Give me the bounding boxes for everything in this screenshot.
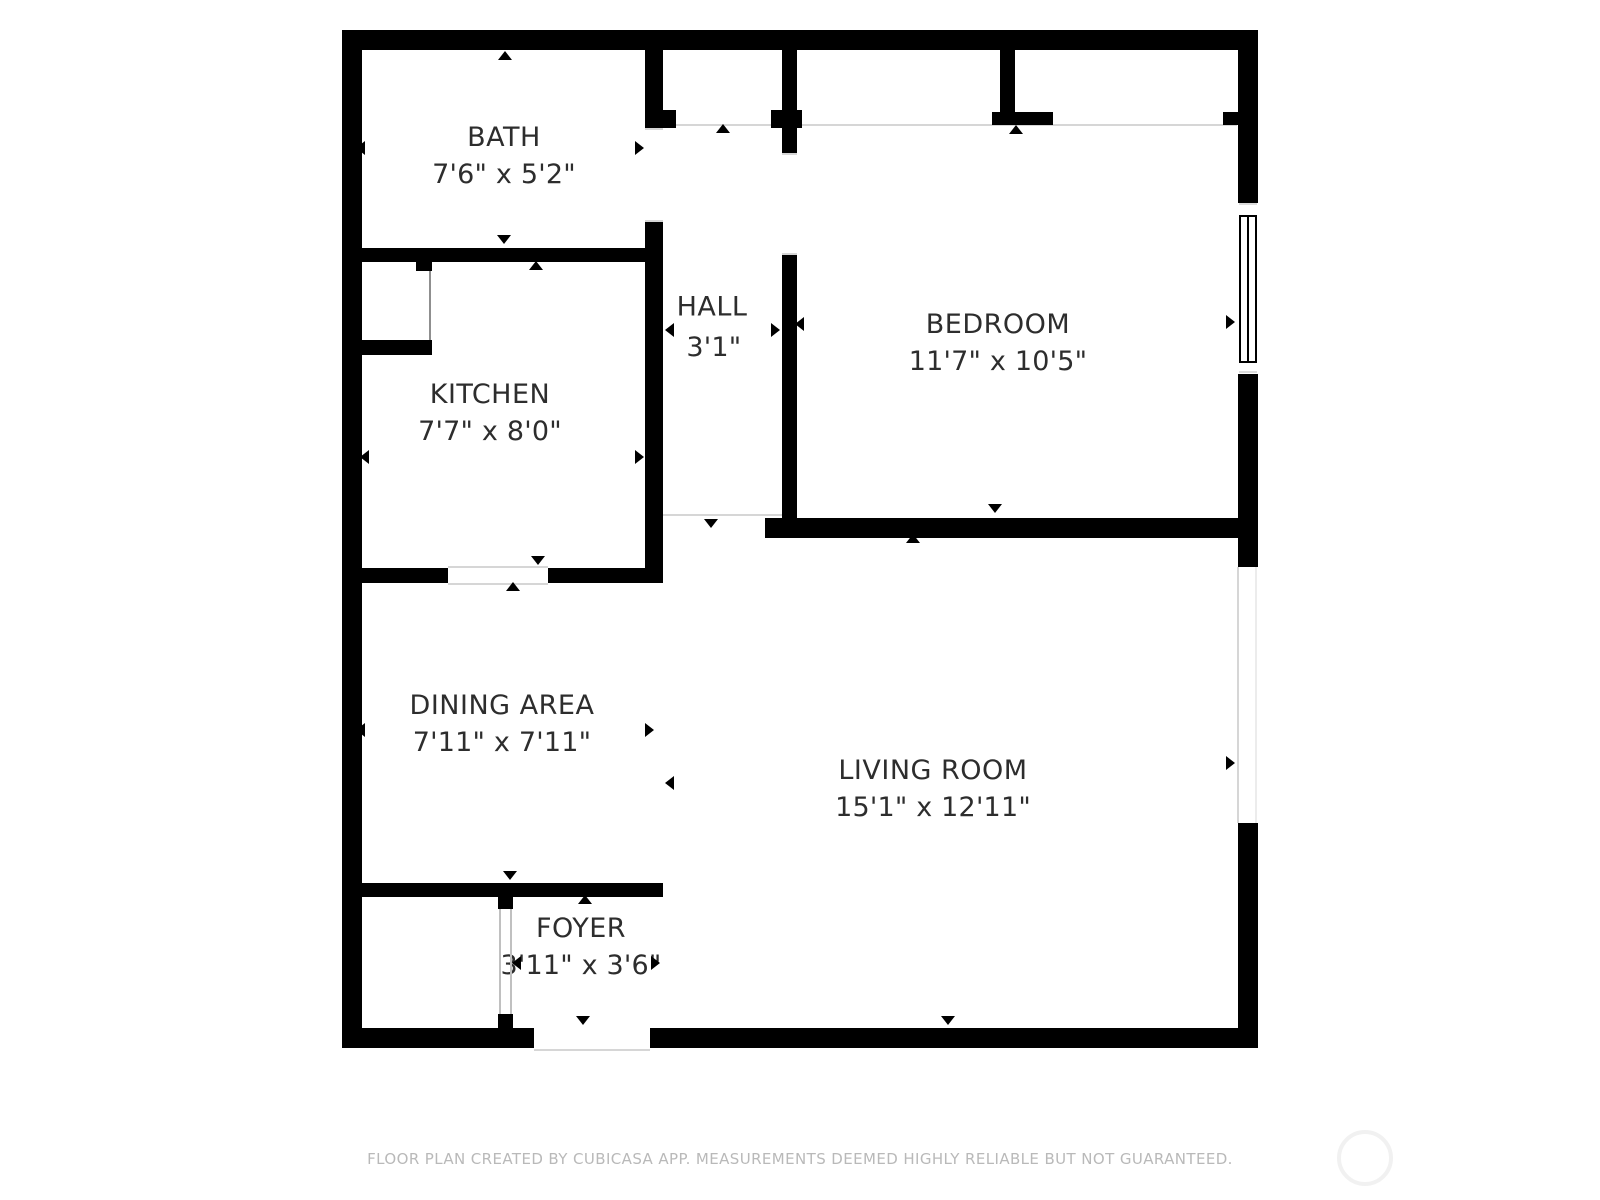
dimension-arrow-up-icon [578,895,592,904]
wall-segment [416,262,432,271]
room-name: LIVING ROOM [835,752,1031,789]
wall-segment [645,222,663,583]
wall-segment [1238,30,1258,203]
watermark-circle-icon [1337,1130,1393,1186]
wall-segment [1238,823,1258,1048]
thin-line [1239,203,1257,205]
room-dimensions: 3'11" x 3'6" [500,947,661,984]
dimension-arrow-down-icon [503,871,517,880]
room-label-kitchen: KITCHEN 7'7" x 8'0" [418,376,562,450]
wall-segment [782,50,797,153]
dimension-arrow-right-icon [635,141,644,155]
room-name: KITCHEN [418,376,562,413]
floor-plan: BATH 7'6" x 5'2" KITCHEN 7'7" x 8'0" HAL… [0,0,1600,1200]
thin-line [663,514,782,516]
dimension-arrow-left-icon [356,141,365,155]
dimension-arrow-right-icon [1226,756,1235,770]
thin-line [534,1049,650,1051]
room-name: FOYER [500,910,661,947]
dimension-arrow-left-icon [665,323,674,337]
dimension-arrow-down-icon [531,556,545,565]
wall-segment [1223,112,1238,125]
thin-line [645,128,663,130]
thin-line [782,153,797,155]
thin-line [1255,567,1257,823]
wall-segment [645,50,663,128]
dimension-arrow-left-icon [360,450,369,464]
dimension-arrow-down-icon [941,1016,955,1025]
dimension-arrow-right-icon [651,956,660,970]
wall-segment [992,112,1053,125]
dimension-arrow-up-icon [906,534,920,543]
wall-segment [498,895,513,909]
room-label-living-room: LIVING ROOM 15'1" x 12'11" [835,752,1031,826]
dimension-arrow-right-icon [771,323,780,337]
room-dimensions: 11'7" x 10'5" [909,343,1088,380]
room-label-bath: BATH 7'6" x 5'2" [432,119,576,193]
room-dimensions: 15'1" x 12'11" [835,789,1031,826]
wall-segment [342,340,432,355]
dimension-arrow-up-icon [498,51,512,60]
wall-segment [342,248,663,262]
wall-segment [771,110,802,128]
room-label-hall: HALL [677,289,748,326]
thin-line [448,566,548,568]
dimension-arrow-up-icon [506,582,520,591]
hall-dimensions-clipped: 3'1" x 10'9" [663,329,782,367]
thin-line [663,124,1237,126]
dimension-arrow-right-icon [645,723,654,737]
room-dimensions: 7'7" x 8'0" [418,413,562,450]
dimension-arrow-left-icon [795,317,804,331]
thin-line [448,583,548,585]
room-label-foyer: FOYER 3'11" x 3'6" [500,910,661,984]
dimension-arrow-right-icon [635,450,644,464]
room-name: BEDROOM [909,306,1088,343]
dimension-arrow-left-icon [512,956,521,970]
thin-line [499,908,501,1014]
room-dimensions: 3'1" x 10'9" [686,329,758,367]
dimension-arrow-left-icon [665,776,674,790]
room-name: BATH [432,119,576,156]
wall-segment [342,30,1258,50]
thin-line [1239,371,1257,373]
dimension-arrow-down-icon [497,235,511,244]
wall-segment [548,568,663,583]
dimension-arrow-down-icon [704,519,718,528]
dimension-arrow-down-icon [576,1016,590,1025]
wall-segment [342,568,448,583]
dimension-arrow-up-icon [716,124,730,133]
wall-segment [650,1028,1258,1048]
wall-segment [498,1014,513,1028]
thin-line [1237,567,1239,823]
room-name: HALL [677,289,748,326]
dimension-arrow-left-icon [356,723,365,737]
dimension-arrow-right-icon [1226,315,1235,329]
room-label-bedroom: BEDROOM 11'7" x 10'5" [909,306,1088,380]
wall-segment [663,110,676,128]
wall-segment [765,518,1238,538]
wall-segment [342,1028,534,1048]
room-dimensions: 7'6" x 5'2" [432,156,576,193]
bedroom-window-mullion [1247,217,1249,361]
room-label-dining-area: DINING AREA 7'11" x 7'11" [410,687,595,761]
room-dimensions: 7'11" x 7'11" [410,724,595,761]
wall-segment [782,255,797,538]
room-name: DINING AREA [410,687,595,724]
dimension-arrow-down-icon [988,504,1002,513]
wall-segment [1000,50,1015,112]
wall-segment [1238,374,1258,567]
thin-line [429,266,431,340]
dimension-arrow-up-icon [1009,125,1023,134]
dimension-arrow-up-icon [529,261,543,270]
